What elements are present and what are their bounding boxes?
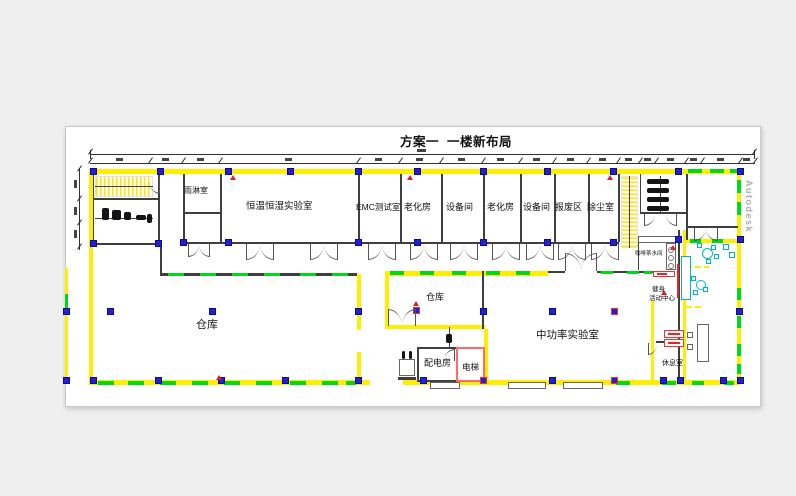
furniture-cyan xyxy=(714,254,719,259)
wall-yellow xyxy=(695,306,701,308)
furniture-outline xyxy=(638,236,678,243)
column-marker xyxy=(90,377,97,384)
dimension-line xyxy=(90,154,755,155)
sanitary-fixture xyxy=(647,179,669,184)
column-marker xyxy=(107,308,114,315)
green-dash xyxy=(128,381,144,385)
furniture-cyan xyxy=(697,243,702,248)
column-marker xyxy=(225,239,232,246)
column-marker xyxy=(63,308,70,315)
green-dash xyxy=(98,381,114,385)
door-arc xyxy=(605,244,619,260)
dimension-number xyxy=(717,158,724,161)
green-dash xyxy=(737,288,741,300)
green-dash xyxy=(616,381,630,385)
furniture-outline xyxy=(430,382,460,389)
door-arc xyxy=(506,244,520,260)
dimension-number xyxy=(74,180,77,188)
green-dash xyxy=(737,364,741,374)
furniture-cyan xyxy=(681,256,691,300)
room-label-rain-room: 雨淋室 xyxy=(184,187,208,195)
red-triangle-marker xyxy=(670,245,676,250)
door-arc xyxy=(388,309,402,326)
column-marker xyxy=(414,168,421,175)
room-label-rest-room: 休息室 xyxy=(662,360,683,367)
green-dash xyxy=(737,180,741,193)
room-label-aging-1: 老化房 xyxy=(404,203,431,212)
column-marker xyxy=(675,236,682,243)
column-marker xyxy=(610,168,617,175)
room-label-warehouse-small: 仓库 xyxy=(426,293,444,302)
green-dash xyxy=(224,381,240,385)
column-marker xyxy=(355,239,362,246)
red-line xyxy=(677,264,679,298)
column-marker xyxy=(225,168,232,175)
column-marker xyxy=(355,308,362,315)
door-arc xyxy=(666,214,677,226)
counter-circle xyxy=(668,263,674,269)
dimension-number xyxy=(74,230,77,238)
green-dash xyxy=(710,169,724,173)
green-dash xyxy=(420,271,434,275)
furniture-outline xyxy=(563,382,603,389)
column-marker xyxy=(720,377,727,384)
column-marker xyxy=(180,239,187,246)
column-marker xyxy=(737,236,744,243)
cad-canvas: 方案一 一楼新布局 Autodesk 雨淋室 恒温恒湿实验室 EMC测试室 老化… xyxy=(0,0,796,496)
wall-dark xyxy=(520,174,522,242)
column-marker xyxy=(355,377,362,384)
red-line xyxy=(668,342,680,344)
furniture-outline xyxy=(687,344,693,350)
door-arc xyxy=(492,244,506,260)
room-label-mid-power-lab: 中功率实验室 xyxy=(536,330,599,341)
door-arc xyxy=(410,244,424,260)
column-marker xyxy=(549,308,556,315)
column-marker xyxy=(480,239,487,246)
column-marker xyxy=(157,168,164,175)
floor-plan xyxy=(0,0,796,496)
wall-yellow xyxy=(695,266,701,268)
column-marker-red xyxy=(611,308,618,315)
room-label-equipment-2: 设备间 xyxy=(523,203,550,212)
furniture-cyan xyxy=(729,252,735,258)
door-arc xyxy=(464,244,478,260)
column-marker xyxy=(90,168,97,175)
red-line xyxy=(657,273,667,275)
red-triangle-marker xyxy=(216,375,222,380)
wall-dark xyxy=(93,198,160,200)
furniture-cyan xyxy=(711,245,716,250)
door-arc xyxy=(324,244,338,260)
dimension-number xyxy=(625,158,632,161)
door-arc xyxy=(188,244,199,257)
dimension-number xyxy=(743,158,750,161)
green-dash xyxy=(737,202,741,215)
dimension-line xyxy=(79,168,80,250)
green-dash xyxy=(300,273,316,276)
wall-yellow xyxy=(651,300,654,382)
wall-dark xyxy=(183,174,185,242)
red-triangle-marker xyxy=(407,175,413,180)
wall-dark xyxy=(183,212,220,214)
green-dash xyxy=(256,381,272,385)
column-marker xyxy=(737,168,744,175)
green-dash xyxy=(192,381,208,385)
column-marker xyxy=(63,377,70,384)
green-dash xyxy=(692,381,704,385)
sanitary-fixture xyxy=(647,197,669,202)
wall-dark xyxy=(640,174,641,214)
door-arc xyxy=(424,244,438,260)
column-marker xyxy=(287,168,294,175)
door-arc xyxy=(450,244,464,260)
dimension-number xyxy=(116,158,123,161)
door-arc xyxy=(382,244,396,260)
green-dash xyxy=(322,381,338,385)
room-label-elevator: 电梯 xyxy=(462,363,479,372)
column-marker xyxy=(420,377,427,384)
door-arc xyxy=(644,214,655,226)
dimension-number xyxy=(375,158,382,161)
counter-circle xyxy=(668,255,674,261)
sanitary-fixture xyxy=(102,208,109,220)
green-dash xyxy=(232,273,248,276)
green-dash xyxy=(290,381,306,385)
room-label-fitness-2: 活动中心 xyxy=(649,296,675,303)
room-label-climate-lab: 恒温恒湿实验室 xyxy=(246,202,313,212)
furniture-cyan xyxy=(706,259,711,264)
column-marker xyxy=(209,308,216,315)
furniture-cyan xyxy=(693,290,698,295)
column-marker xyxy=(282,377,289,384)
sanitary-fixture xyxy=(647,206,669,211)
dimension-number xyxy=(197,158,204,161)
column-marker xyxy=(677,377,684,384)
door-arc xyxy=(402,309,416,326)
autodesk-watermark: Autodesk xyxy=(744,180,754,233)
door-arc xyxy=(526,244,540,260)
room-label-fitness-1: 健身 xyxy=(652,287,665,294)
green-dash xyxy=(688,169,702,173)
wall-dark xyxy=(548,271,565,273)
column-marker xyxy=(480,308,487,315)
dimension-number xyxy=(599,158,606,161)
furniture-outline xyxy=(399,359,415,376)
furniture-cyan xyxy=(703,287,708,292)
column-marker xyxy=(355,168,362,175)
room-label-dust-room: 除尘室 xyxy=(587,203,614,212)
red-triangle-marker xyxy=(413,301,419,306)
wall-dark xyxy=(398,377,416,380)
column-marker xyxy=(480,168,487,175)
red-triangle-marker xyxy=(607,175,613,180)
wall-dark xyxy=(483,174,485,242)
green-dash xyxy=(486,271,500,275)
sanitary-fixture xyxy=(147,214,152,223)
door-arc xyxy=(368,244,382,260)
dimension-number xyxy=(533,158,540,161)
column-marker xyxy=(737,377,744,384)
wall-dark xyxy=(95,186,153,187)
column-marker xyxy=(155,240,162,247)
green-dash xyxy=(264,273,280,276)
green-dash xyxy=(168,273,184,276)
door-arc xyxy=(648,343,657,355)
dimension-number xyxy=(74,207,77,215)
column-marker xyxy=(90,240,97,247)
green-dash xyxy=(737,344,741,356)
wall-dark xyxy=(618,174,620,242)
wall-dark xyxy=(441,174,443,242)
wall-dark xyxy=(160,243,162,273)
sanitary-fixture xyxy=(112,210,121,220)
wall-dark xyxy=(93,174,94,243)
green-dash xyxy=(601,271,613,274)
furniture-outline xyxy=(687,332,693,338)
green-dash xyxy=(737,316,741,328)
red-triangle-marker xyxy=(230,175,236,180)
door-arc xyxy=(540,244,554,260)
dimension-number xyxy=(162,158,169,161)
room-label-equipment-1: 设备间 xyxy=(446,203,473,212)
green-dash xyxy=(390,271,404,275)
wall-dark xyxy=(629,176,630,248)
sanitary-fixture xyxy=(124,212,131,220)
furniture-outline xyxy=(508,382,546,389)
green-dash xyxy=(65,294,68,308)
room-label-coffee-room: 咖啡茶水间 xyxy=(635,252,663,258)
green-dash xyxy=(200,273,216,276)
column-marker xyxy=(155,377,162,384)
column-marker-red xyxy=(480,377,487,384)
column-marker-red xyxy=(611,377,618,384)
dimension-number xyxy=(497,158,504,161)
green-dash xyxy=(160,381,176,385)
sanitary-fixture xyxy=(402,351,405,359)
green-dash xyxy=(627,271,639,274)
furniture-outline xyxy=(697,324,709,362)
column-marker xyxy=(544,168,551,175)
dimension-number xyxy=(416,158,423,161)
dimension-number xyxy=(285,158,292,161)
wall-yellow xyxy=(704,266,709,268)
drawing-title: 方案一 一楼新布局 xyxy=(400,131,512,150)
green-dash xyxy=(516,271,530,275)
wall-yellow xyxy=(357,274,361,330)
room-label-power-dist: 配电房 xyxy=(424,359,451,368)
wall-yellow xyxy=(686,306,692,308)
door-arc xyxy=(310,244,324,260)
column-marker xyxy=(736,308,743,315)
dimension-number xyxy=(690,158,697,161)
green-dash xyxy=(332,273,348,276)
door-arc xyxy=(260,244,274,260)
dimension-number xyxy=(644,158,651,161)
room-label-aging-2: 老化房 xyxy=(487,203,514,212)
room-label-warehouse-large: 仓库 xyxy=(196,320,218,331)
sanitary-fixture xyxy=(446,334,452,343)
red-line xyxy=(668,333,680,335)
door-arc xyxy=(199,244,210,257)
room-label-scrap-area: 报废区 xyxy=(555,203,582,212)
sanitary-fixture xyxy=(647,188,669,193)
dimension-number xyxy=(667,158,674,161)
column-marker xyxy=(675,168,682,175)
sanitary-fixture xyxy=(409,351,412,359)
wall-dark xyxy=(482,271,484,329)
sanitary-fixture xyxy=(136,215,146,220)
wall-dark xyxy=(160,273,357,276)
green-dash xyxy=(452,271,466,275)
column-marker xyxy=(549,377,556,384)
dimension-number xyxy=(458,158,465,161)
room-label-emc-test: EMC测试室 xyxy=(356,203,400,212)
door-arc xyxy=(246,244,260,260)
wall-dark xyxy=(93,243,160,245)
column-marker xyxy=(660,377,667,384)
wall-yellow xyxy=(65,268,68,382)
furniture-cyan xyxy=(723,244,729,250)
furniture-cyan xyxy=(691,276,696,281)
wall-dark xyxy=(220,174,222,242)
green-dash xyxy=(644,271,652,274)
dimension-number xyxy=(567,158,574,161)
wall-dark xyxy=(686,174,688,240)
